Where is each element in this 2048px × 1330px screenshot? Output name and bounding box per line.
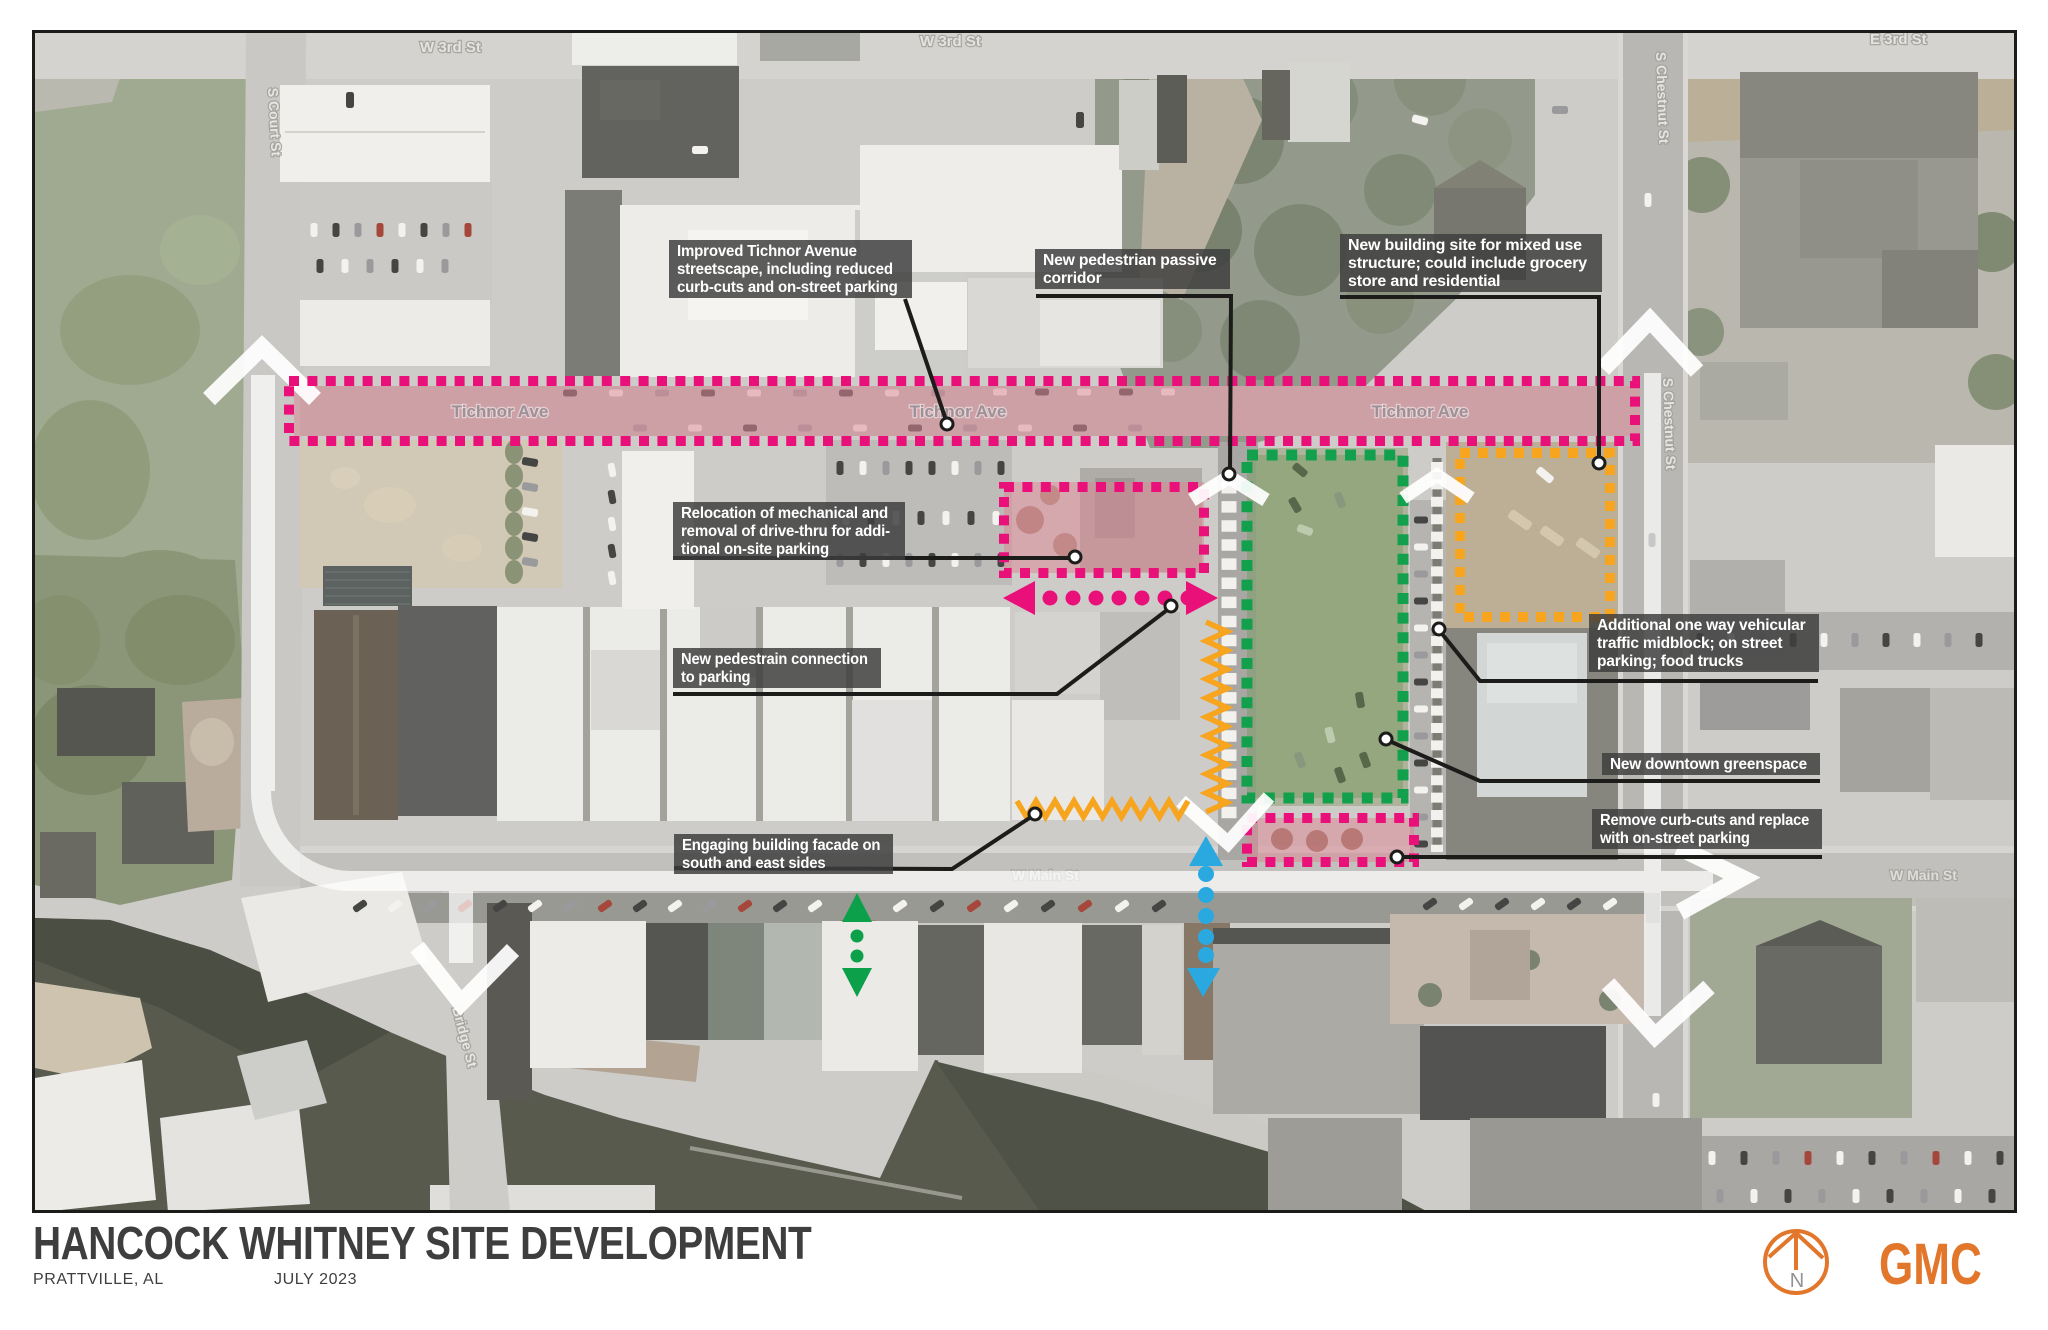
svg-text:N: N — [1790, 1270, 1804, 1292]
svg-text:Tichnor Ave: Tichnor Ave — [910, 402, 1007, 421]
svg-text:Tichnor Ave: Tichnor Ave — [1372, 402, 1469, 421]
svg-text:GMC: GMC — [1879, 1231, 1982, 1296]
svg-text:Tichnor Ave: Tichnor Ave — [452, 402, 549, 421]
